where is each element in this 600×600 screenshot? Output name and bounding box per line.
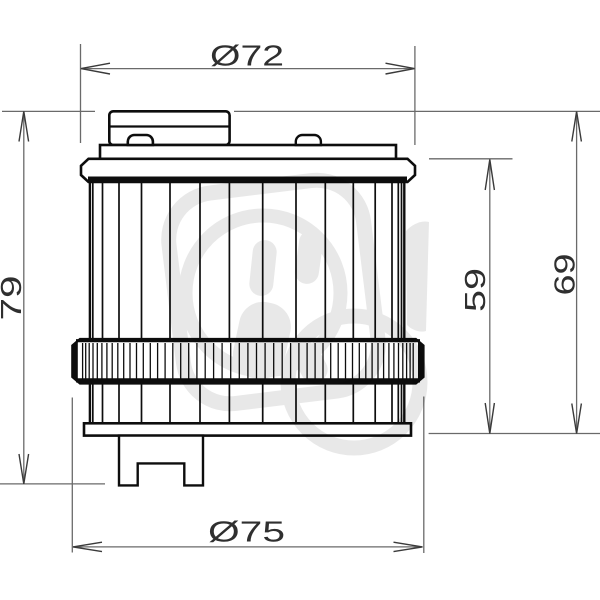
- svg-text:Ø75: Ø75: [208, 517, 285, 549]
- svg-text:79: 79: [0, 276, 28, 321]
- svg-text:69: 69: [550, 254, 582, 296]
- svg-text:59: 59: [460, 268, 492, 312]
- svg-text:Ø72: Ø72: [210, 41, 284, 73]
